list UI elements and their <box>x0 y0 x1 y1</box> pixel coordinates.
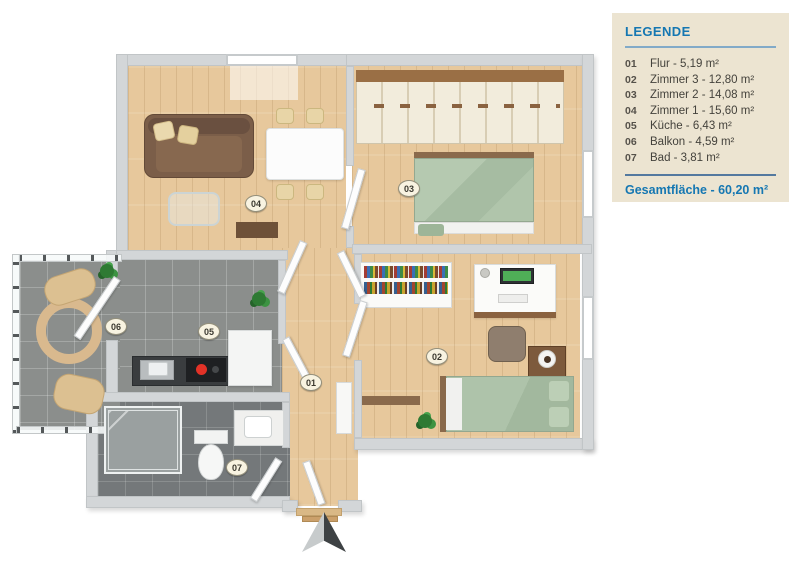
legend-item-label: Zimmer 3 - 12,80 m² <box>650 73 754 89</box>
wall <box>346 66 354 166</box>
wall <box>116 250 288 260</box>
wall <box>96 392 290 402</box>
plant <box>252 292 266 306</box>
pillow <box>418 224 444 236</box>
north-arrow <box>302 512 346 552</box>
room-label-06: 06 <box>105 318 127 335</box>
legend-item-number: 05 <box>625 119 641 135</box>
legend-item-number: 02 <box>625 73 641 89</box>
legend-panel: LEGENDE 01Flur - 5,19 m² 02Zimmer 3 - 12… <box>612 13 789 202</box>
legend-item-number: 03 <box>625 88 641 104</box>
window <box>226 54 298 66</box>
legend-item-number: 06 <box>625 135 641 151</box>
legend-item-label: Balkon - 4,59 m² <box>650 135 734 151</box>
room-number: 02 <box>432 352 442 362</box>
room-number: 04 <box>251 199 261 209</box>
room-number: 01 <box>306 378 316 388</box>
legend-total: Gesamtfläche - 60,20 m² <box>625 183 776 197</box>
lamp-top <box>544 356 551 363</box>
burner <box>196 364 207 375</box>
wall <box>354 438 592 450</box>
room-label-04: 04 <box>245 195 267 212</box>
books <box>364 282 448 294</box>
desk-edge <box>474 312 556 318</box>
north-arrow-right <box>324 512 346 552</box>
window <box>582 150 594 218</box>
books <box>364 266 448 278</box>
room-label-07: 07 <box>226 459 248 476</box>
wall <box>346 54 594 66</box>
dining-chair <box>276 108 294 124</box>
wall <box>354 360 362 438</box>
legend-item-number: 01 <box>625 57 641 73</box>
dining-table <box>266 128 344 180</box>
monitor-screen <box>503 271 531 281</box>
room-label-02: 02 <box>426 348 448 365</box>
legend-item: 05Küche - 6,43 m² <box>625 119 776 135</box>
legend-item: 02Zimmer 3 - 12,80 m² <box>625 73 776 89</box>
dining-chair <box>306 108 324 124</box>
sofa-seat <box>156 136 242 172</box>
legend-item-label: Zimmer 1 - 15,60 m² <box>650 104 754 120</box>
washbasin <box>244 416 272 438</box>
plant <box>100 264 114 278</box>
bed-sheet <box>446 378 462 430</box>
legend-item: 06Balkon - 4,59 m² <box>625 135 776 151</box>
legend-item-label: Küche - 6,43 m² <box>650 119 732 135</box>
plant <box>418 414 432 428</box>
shower-glass <box>108 410 178 470</box>
room-label-01: 01 <box>300 374 322 391</box>
desk-lamp <box>480 268 490 278</box>
room-number: 06 <box>111 322 121 332</box>
bed <box>414 158 534 222</box>
floorplan-canvas: 01 02 03 04 05 06 07 LEGENDE 01Flur - 5,… <box>0 0 800 565</box>
burner <box>212 366 219 373</box>
pillow <box>177 124 200 145</box>
legend-item-number: 04 <box>625 104 641 120</box>
wardrobe-handles <box>360 104 560 108</box>
window-light <box>230 66 298 100</box>
fridge <box>228 330 272 386</box>
room-label-05: 05 <box>198 323 220 340</box>
pillow <box>548 406 570 428</box>
legend-title: LEGENDE <box>625 24 776 39</box>
legend-item-number: 07 <box>625 151 641 167</box>
wardrobe-top <box>356 70 564 82</box>
doormat <box>236 222 278 238</box>
room-number: 07 <box>232 463 242 473</box>
dining-chair <box>306 184 324 200</box>
dining-chair <box>276 184 294 200</box>
window <box>582 296 594 360</box>
legend-item-label: Bad - 3,81 m² <box>650 151 720 167</box>
room-number: 05 <box>204 327 214 337</box>
legend-item: 04Zimmer 1 - 15,60 m² <box>625 104 776 120</box>
wall <box>116 54 128 258</box>
sink-basin <box>148 362 168 376</box>
legend-item: 03Zimmer 2 - 14,08 m² <box>625 88 776 104</box>
glass-railing <box>12 254 20 434</box>
wall <box>352 244 592 254</box>
toilet-bowl <box>198 444 224 480</box>
legend-item: 01Flur - 5,19 m² <box>625 57 776 73</box>
wall <box>106 340 118 400</box>
sideboard <box>362 396 420 405</box>
pillow <box>548 380 570 402</box>
legend-item-label: Flur - 5,19 m² <box>650 57 719 73</box>
toilet-tank <box>194 430 228 444</box>
room-number: 03 <box>404 184 414 194</box>
legend-item: 07Bad - 3,81 m² <box>625 151 776 167</box>
north-arrow-left <box>302 512 324 552</box>
keyboard <box>498 294 528 303</box>
legend-divider <box>625 46 776 48</box>
legend-item-label: Zimmer 2 - 14,08 m² <box>650 88 754 104</box>
room-label-03: 03 <box>398 180 420 197</box>
coffee-table <box>168 192 220 226</box>
glass-railing <box>18 254 122 262</box>
legend-divider <box>625 174 776 176</box>
desk-chair <box>488 326 526 362</box>
hall-cabinet <box>336 382 352 434</box>
